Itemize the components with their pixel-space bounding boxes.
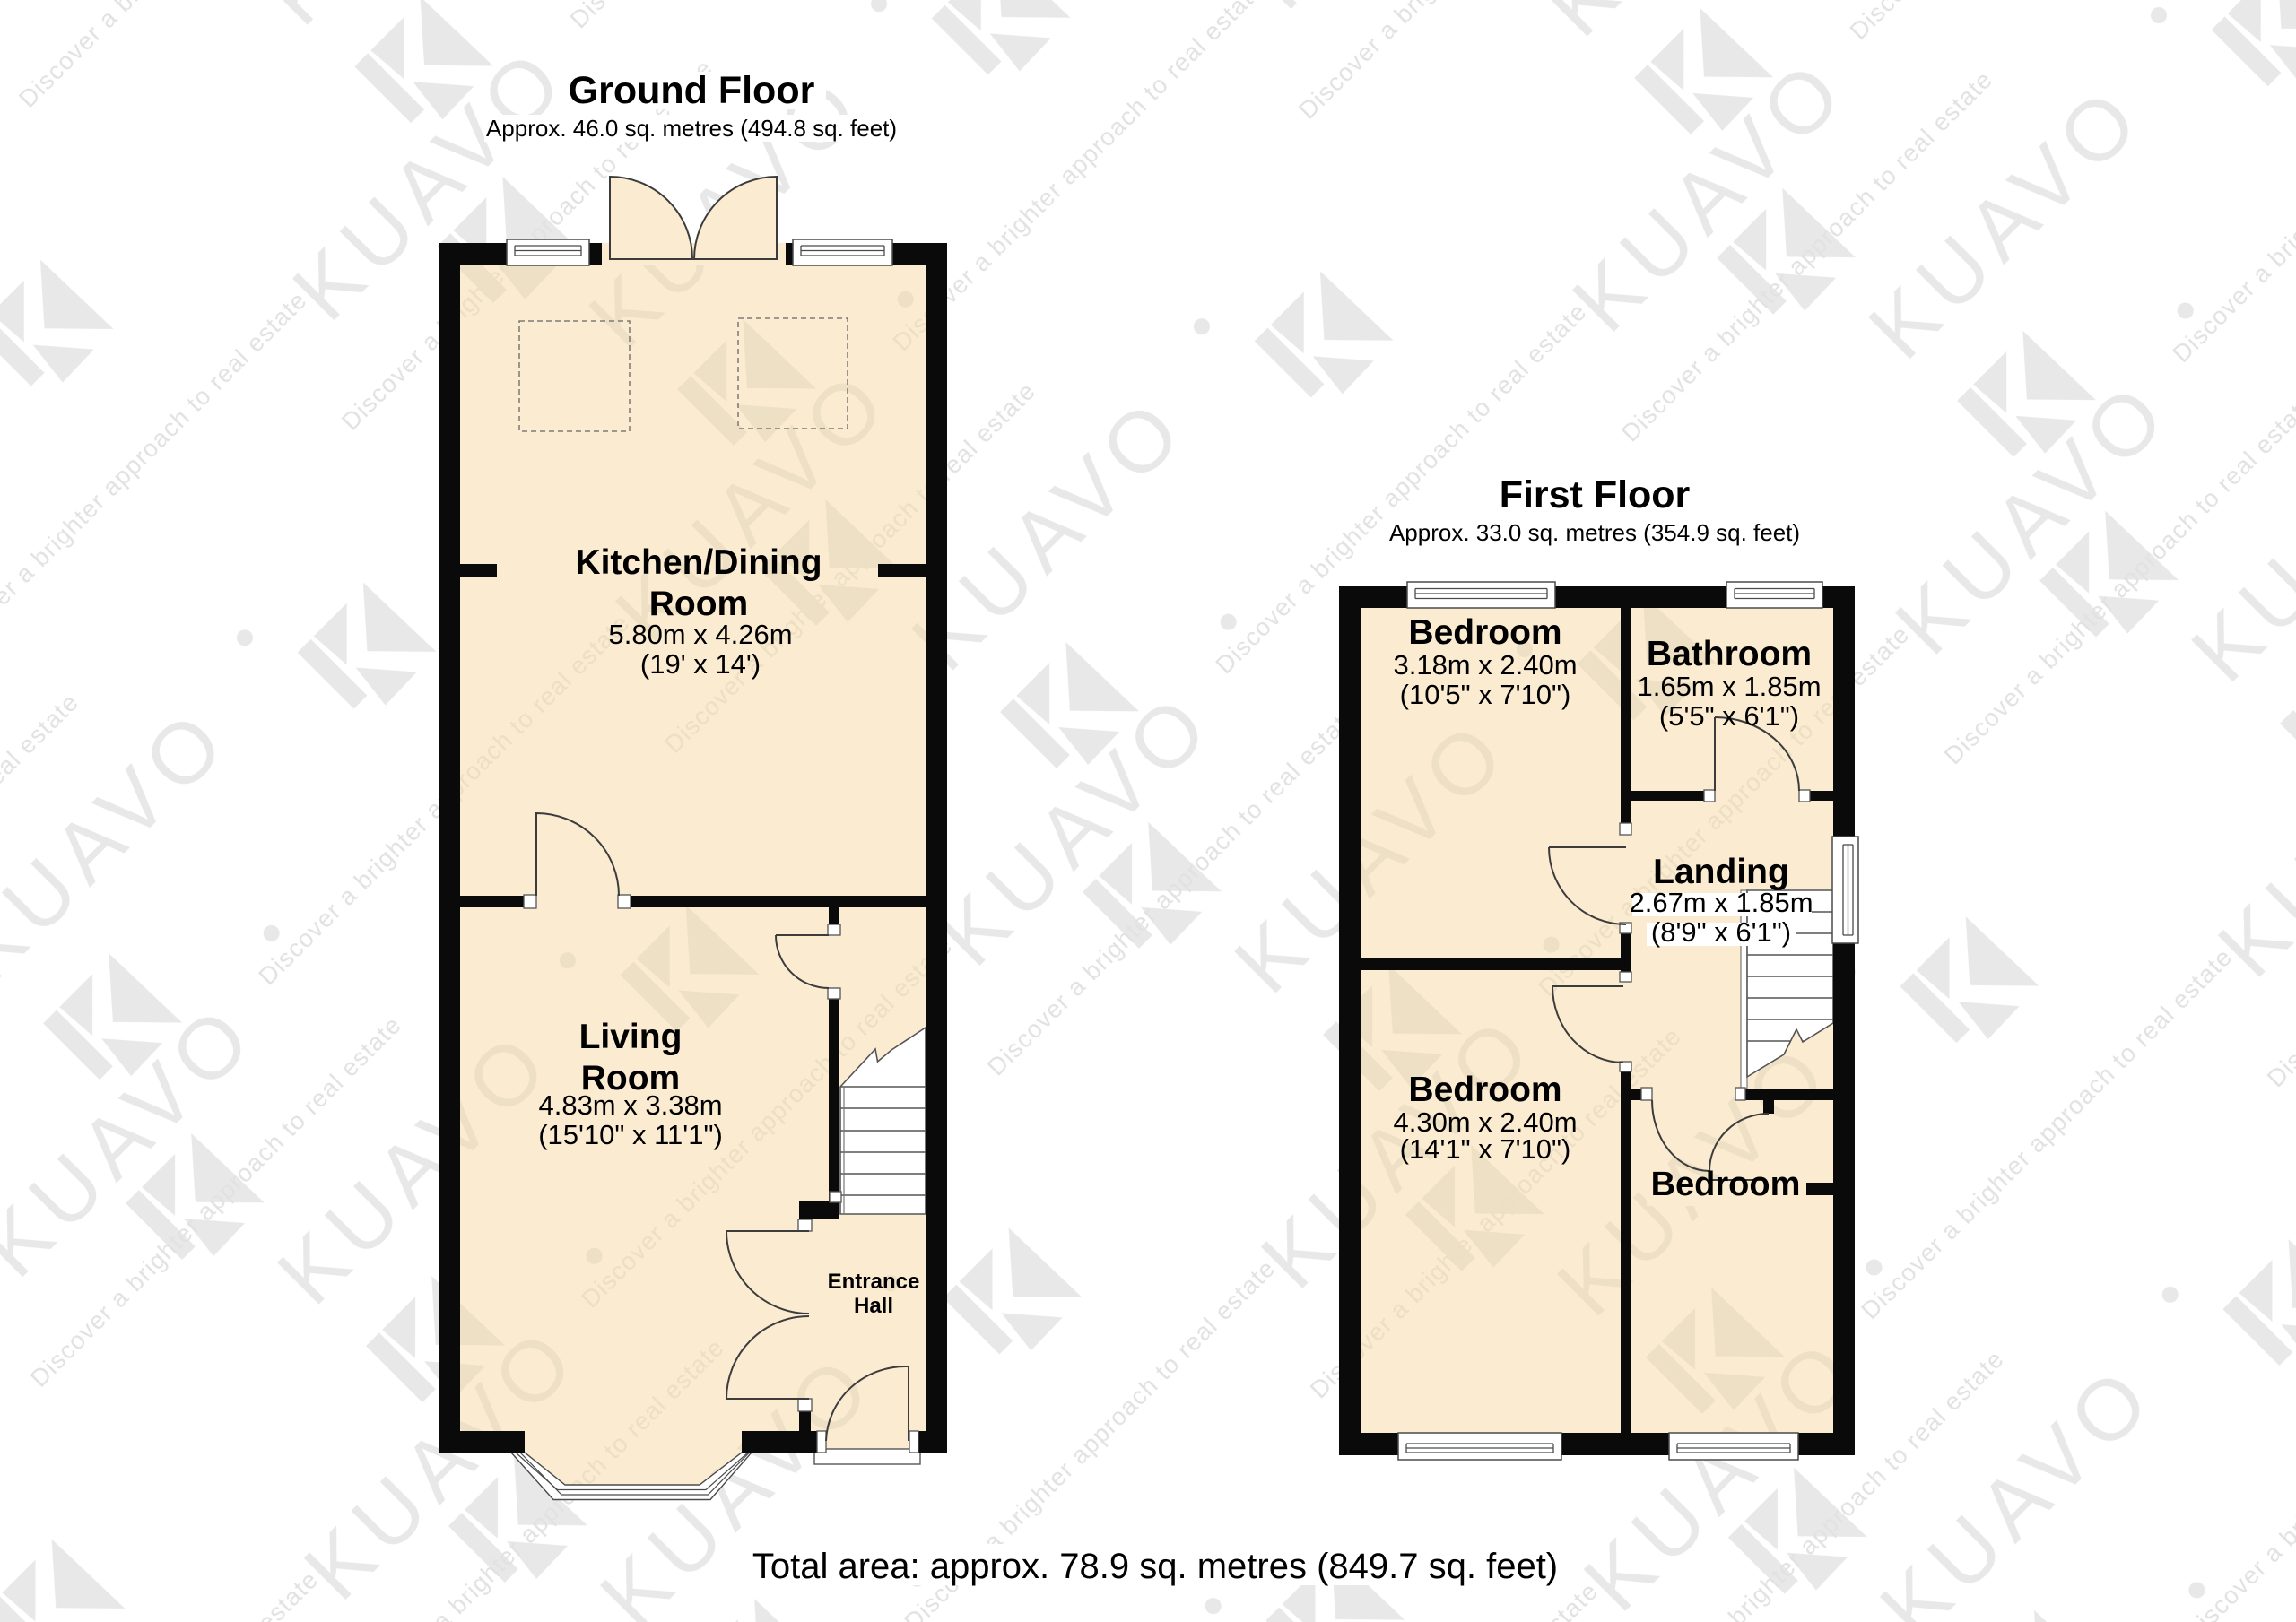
svg-text:(19' x 14'): (19' x 14')	[640, 648, 761, 680]
svg-text:2.67m x 1.85m: 2.67m x 1.85m	[1629, 887, 1813, 918]
svg-text:(15'10" x 11'1"): (15'10" x 11'1")	[538, 1119, 723, 1150]
svg-text:(10'5" x 7'10"): (10'5" x 7'10")	[1400, 679, 1571, 710]
svg-text:Total area: approx. 78.9 sq. m: Total area: approx. 78.9 sq. metres (849…	[752, 1547, 1558, 1586]
svg-text:(8'9" x 6'1"): (8'9" x 6'1")	[1651, 916, 1791, 948]
svg-text:1.65m x 1.85m: 1.65m x 1.85m	[1637, 671, 1821, 702]
svg-text:Ground Floor: Ground Floor	[569, 69, 815, 112]
svg-text:First Floor: First Floor	[1500, 473, 1691, 516]
svg-text:Landing: Landing	[1653, 853, 1789, 891]
svg-text:Kitchen/Dining: Kitchen/Dining	[575, 543, 822, 582]
svg-text:Bathroom: Bathroom	[1647, 635, 1812, 673]
svg-text:Bedroom: Bedroom	[1408, 1071, 1561, 1109]
svg-text:Approx. 33.0 sq. metres (354.9: Approx. 33.0 sq. metres (354.9 sq. feet)	[1389, 519, 1800, 546]
svg-text:5.80m x 4.26m: 5.80m x 4.26m	[608, 619, 792, 650]
svg-text:Room: Room	[649, 585, 749, 623]
svg-text:Bedroom: Bedroom	[1408, 613, 1561, 652]
svg-text:Entrance: Entrance	[828, 1270, 920, 1294]
svg-text:Living: Living	[579, 1018, 683, 1056]
svg-text:(5'5" x 6'1"): (5'5" x 6'1")	[1659, 700, 1799, 732]
svg-text:4.83m x 3.38m: 4.83m x 3.38m	[538, 1089, 722, 1121]
svg-text:Hall: Hall	[854, 1294, 893, 1318]
svg-text:3.18m x 2.40m: 3.18m x 2.40m	[1393, 649, 1577, 681]
svg-text:(14'1" x 7'10"): (14'1" x 7'10")	[1400, 1133, 1571, 1165]
svg-text:Bedroom: Bedroom	[1651, 1166, 1801, 1203]
svg-text:Approx. 46.0 sq. metres (494.8: Approx. 46.0 sq. metres (494.8 sq. feet)	[486, 115, 897, 142]
